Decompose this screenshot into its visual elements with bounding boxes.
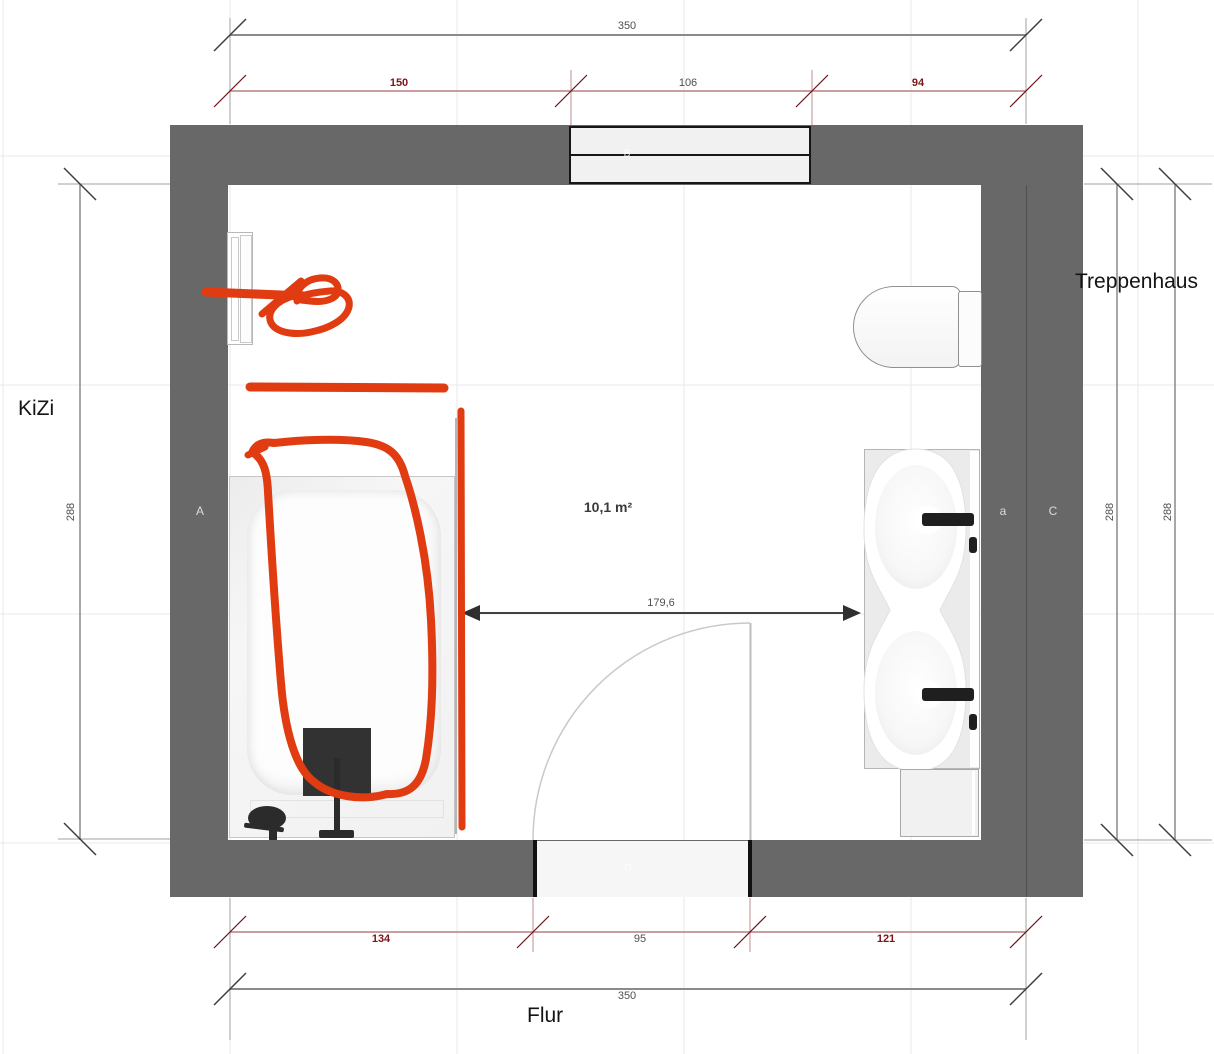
extension-lines-red (533, 70, 812, 952)
door-letter: D (624, 863, 631, 874)
bathtub[interactable] (229, 476, 455, 838)
double-sink[interactable] (864, 449, 980, 769)
dim-right-inner: 288 (1104, 503, 1116, 521)
radiator-slat (231, 237, 239, 341)
dim-top-mid: 106 (679, 77, 697, 89)
dim-bottom-left: 134 (372, 933, 390, 945)
bath-faucet-icon (334, 758, 340, 834)
hand-shower-stem (269, 828, 277, 840)
window-letter: B (624, 149, 631, 160)
wall-right-double[interactable] (981, 185, 1083, 897)
dim-left-side: 288 (65, 503, 77, 521)
cabinet-edge (972, 771, 975, 835)
wall-letter-right-outer: C (1049, 504, 1058, 518)
bath-faucet-base (319, 830, 354, 838)
room-label-treppenhaus: Treppenhaus (1075, 270, 1198, 294)
sink-knob (969, 537, 977, 553)
marker-stroke-vertical-line[interactable] (461, 411, 462, 827)
door-jamb-right (748, 840, 752, 897)
dim-top-right: 94 (912, 77, 924, 89)
shower-screen[interactable] (455, 418, 457, 834)
marker-stroke-scribble-cross[interactable] (262, 281, 301, 314)
dim-bottom-total: 350 (618, 990, 636, 1002)
floorplan-canvas[interactable]: KiZi Treppenhaus Flur 10,1 m² 350 150 10… (0, 0, 1214, 1054)
toilet-tank (958, 291, 982, 367)
dim-top-left: 150 (390, 77, 408, 89)
door-opening[interactable] (535, 841, 750, 897)
room-label-kizi: KiZi (18, 397, 54, 421)
sink-cabinet[interactable] (900, 769, 979, 837)
dim-bottom-right: 121 (877, 933, 895, 945)
dim-top-total: 350 (618, 20, 636, 32)
sink-knob (969, 714, 977, 730)
door-swing-arc (533, 623, 750, 840)
sink-faucet-icon (922, 513, 974, 526)
sink-faucet-icon (922, 688, 974, 701)
wall-right-divider (1026, 185, 1027, 897)
toilet[interactable] (853, 286, 961, 368)
marker-stroke-horizontal-mid[interactable] (250, 387, 444, 388)
dim-interior-width: 179,6 (647, 597, 675, 609)
window[interactable] (569, 126, 811, 184)
radiator[interactable] (227, 232, 253, 345)
room-area-label: 10,1 m² (584, 499, 632, 515)
door-jamb-left (533, 840, 537, 897)
dim-right-outer: 288 (1162, 503, 1174, 521)
radiator-slat (240, 235, 252, 343)
dim-bottom-mid: 95 (634, 933, 646, 945)
marker-stroke-scribble-curl[interactable] (297, 278, 338, 302)
room-label-flur: Flur (527, 1004, 563, 1028)
marker-stroke-scribble-blob[interactable] (270, 291, 350, 334)
window-divider (571, 154, 809, 156)
wall-letter-a-left: A (196, 504, 204, 518)
marker-stroke-loop-spur[interactable] (248, 447, 265, 455)
wall-letter-right-inner: a (1000, 504, 1007, 518)
